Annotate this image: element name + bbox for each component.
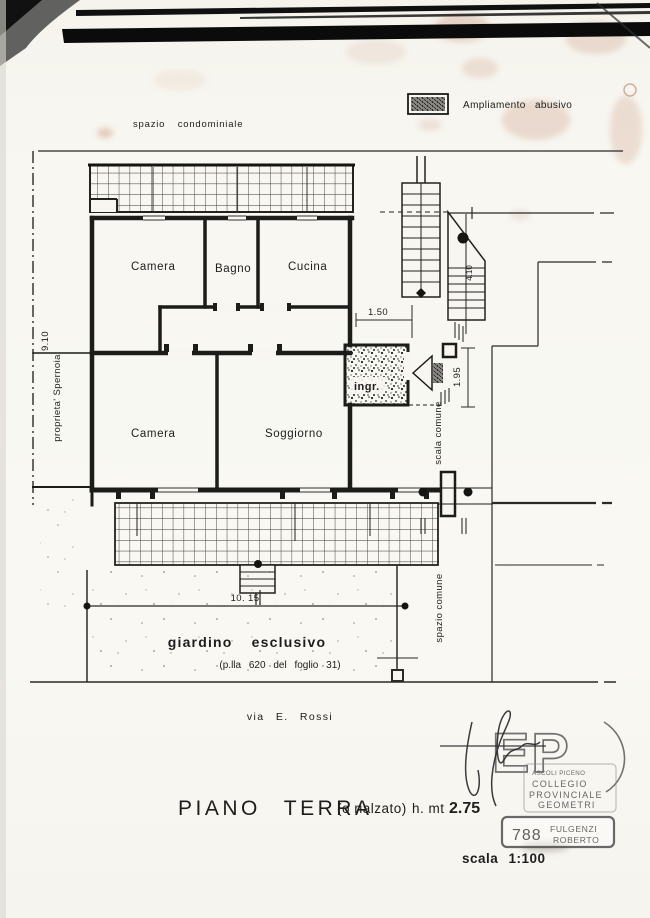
scanned-floor-plan-sheet: ingr.	[0, 0, 650, 918]
common-stairs-label: scala comune	[433, 401, 444, 464]
dim-garden-label: 10. 15	[231, 593, 260, 604]
plan-height-value: 2.75	[449, 800, 480, 817]
dim-195-label: 1.95	[452, 367, 463, 387]
rust-ring-stain	[624, 84, 636, 96]
external-staircase	[380, 156, 485, 342]
stamp-name: ROBERTO	[553, 835, 599, 845]
arrow-hatch	[433, 363, 443, 383]
pillar-dot-left	[419, 488, 428, 497]
signature-loop	[466, 722, 480, 795]
garden-corner-post	[392, 670, 403, 681]
room-bagno-label: Bagno	[215, 263, 251, 275]
flight-b-fade-lines	[455, 322, 463, 342]
title-block: PIANO TERRA (o rialzato) h. mt 2.75 scal…	[178, 797, 546, 866]
plan-title-paren: (o rialzato)	[337, 801, 407, 816]
surveyor-stamp: EP ASCOLI PICENO COLLEGIO PROVINCIALE GE…	[492, 721, 625, 847]
legend-label: Ampliamento abusivo	[463, 100, 572, 111]
common-space-label: spazio comune	[434, 573, 445, 642]
garden-parcel-label: (p.lla 620 del foglio 31)	[219, 660, 340, 671]
dim-410-label: 4.10	[465, 265, 474, 281]
dim-910-label: 9.10	[40, 331, 51, 351]
upper-terrace	[88, 165, 355, 218]
pillar-marker	[441, 472, 455, 516]
stamp-arc	[604, 722, 625, 792]
stamp-org1: COLLEGIO	[532, 779, 588, 789]
floor-plan-canvas: ingr.	[0, 0, 650, 918]
terrace-notch	[91, 199, 117, 212]
scale-label: scala 1:100	[462, 851, 546, 866]
room-soggiorno-label: Soggiorno	[265, 428, 323, 440]
scan-bar-thick	[62, 22, 650, 43]
stamp-org3: GEOMETRI	[538, 800, 596, 810]
column-marker	[443, 344, 456, 357]
stamp-surname: FULGENZI	[550, 824, 597, 834]
legend-hatch	[411, 97, 445, 111]
ingresso-hatched-area	[345, 345, 408, 405]
room-cucina-label: Cucina	[288, 261, 327, 273]
ingresso-block: ingr.	[345, 345, 412, 405]
stamp-number: 788	[512, 827, 542, 844]
stamp-city: ASCOLI PICENO	[532, 770, 585, 777]
dim-dot-right	[402, 603, 409, 610]
pillar-dot-right	[464, 488, 473, 497]
upper-terrace-hatch	[90, 165, 353, 212]
garden-title: giardino esclusivo	[168, 634, 327, 650]
dim-dot-left	[84, 603, 91, 610]
plan-height-label: h. mt	[412, 801, 445, 816]
ingresso-label: ingr.	[354, 381, 380, 393]
property-owner-label: proprieta' Spernoia	[52, 354, 63, 442]
stair-entry-marks	[417, 156, 425, 183]
street-label: via E. Rossi	[247, 711, 333, 723]
left-edge-shade	[0, 0, 6, 918]
arrow-triangle	[413, 356, 432, 390]
dim-150-label: 1.50	[368, 307, 388, 318]
stamp-org2: PROVINCIALE	[529, 790, 603, 800]
step-dot-marker	[254, 560, 262, 568]
condo-space-label: spazio condominiale	[133, 119, 243, 130]
room-camera2-label: Camera	[131, 428, 176, 440]
room-camera1-label: Camera	[131, 261, 176, 273]
ingresso-opening	[404, 352, 412, 380]
lower-terrace-hatch	[115, 503, 438, 565]
landing-dot-marker	[458, 233, 469, 244]
margin-speckle	[40, 498, 88, 618]
